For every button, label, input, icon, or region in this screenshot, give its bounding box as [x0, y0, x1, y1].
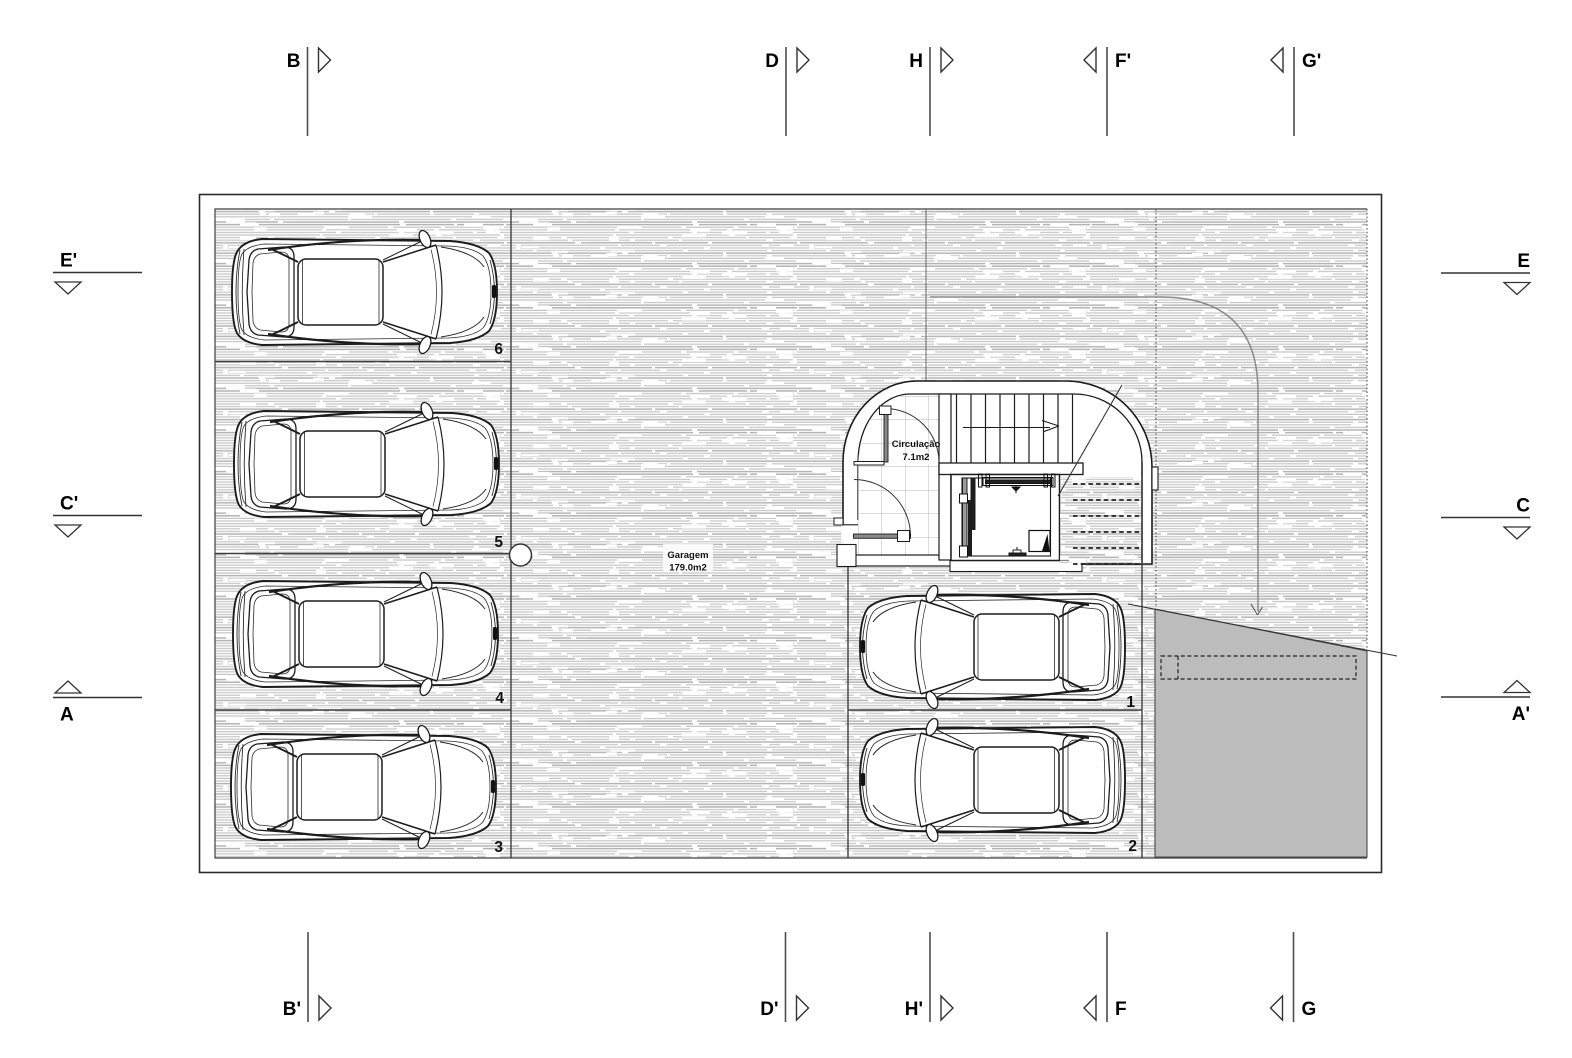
svg-text:Circulação: Circulação — [892, 439, 941, 450]
svg-text:B: B — [287, 51, 301, 72]
svg-text:E': E' — [60, 251, 77, 272]
svg-text:Garagem: Garagem — [667, 550, 708, 561]
svg-text:F': F' — [1115, 51, 1131, 72]
svg-text:A: A — [60, 705, 74, 726]
svg-text:6: 6 — [494, 341, 503, 358]
svg-text:5: 5 — [494, 534, 503, 551]
svg-text:G: G — [1302, 999, 1317, 1020]
svg-text:1: 1 — [1126, 694, 1135, 711]
svg-text:2: 2 — [1128, 838, 1137, 855]
svg-text:G': G' — [1302, 51, 1321, 72]
svg-text:4: 4 — [495, 690, 504, 707]
svg-text:C: C — [1516, 496, 1530, 517]
svg-text:D: D — [765, 51, 779, 72]
svg-text:H': H' — [905, 999, 923, 1020]
svg-text:179.0m2: 179.0m2 — [669, 563, 707, 574]
svg-text:A': A' — [1512, 704, 1530, 725]
svg-text:H: H — [909, 51, 923, 72]
svg-text:F: F — [1115, 999, 1127, 1020]
svg-text:C': C' — [60, 494, 78, 515]
svg-text:7.1m2: 7.1m2 — [903, 452, 930, 463]
svg-text:3: 3 — [494, 839, 503, 856]
svg-text:E: E — [1517, 251, 1530, 272]
svg-text:B': B' — [283, 999, 301, 1020]
svg-text:D': D' — [760, 999, 778, 1020]
